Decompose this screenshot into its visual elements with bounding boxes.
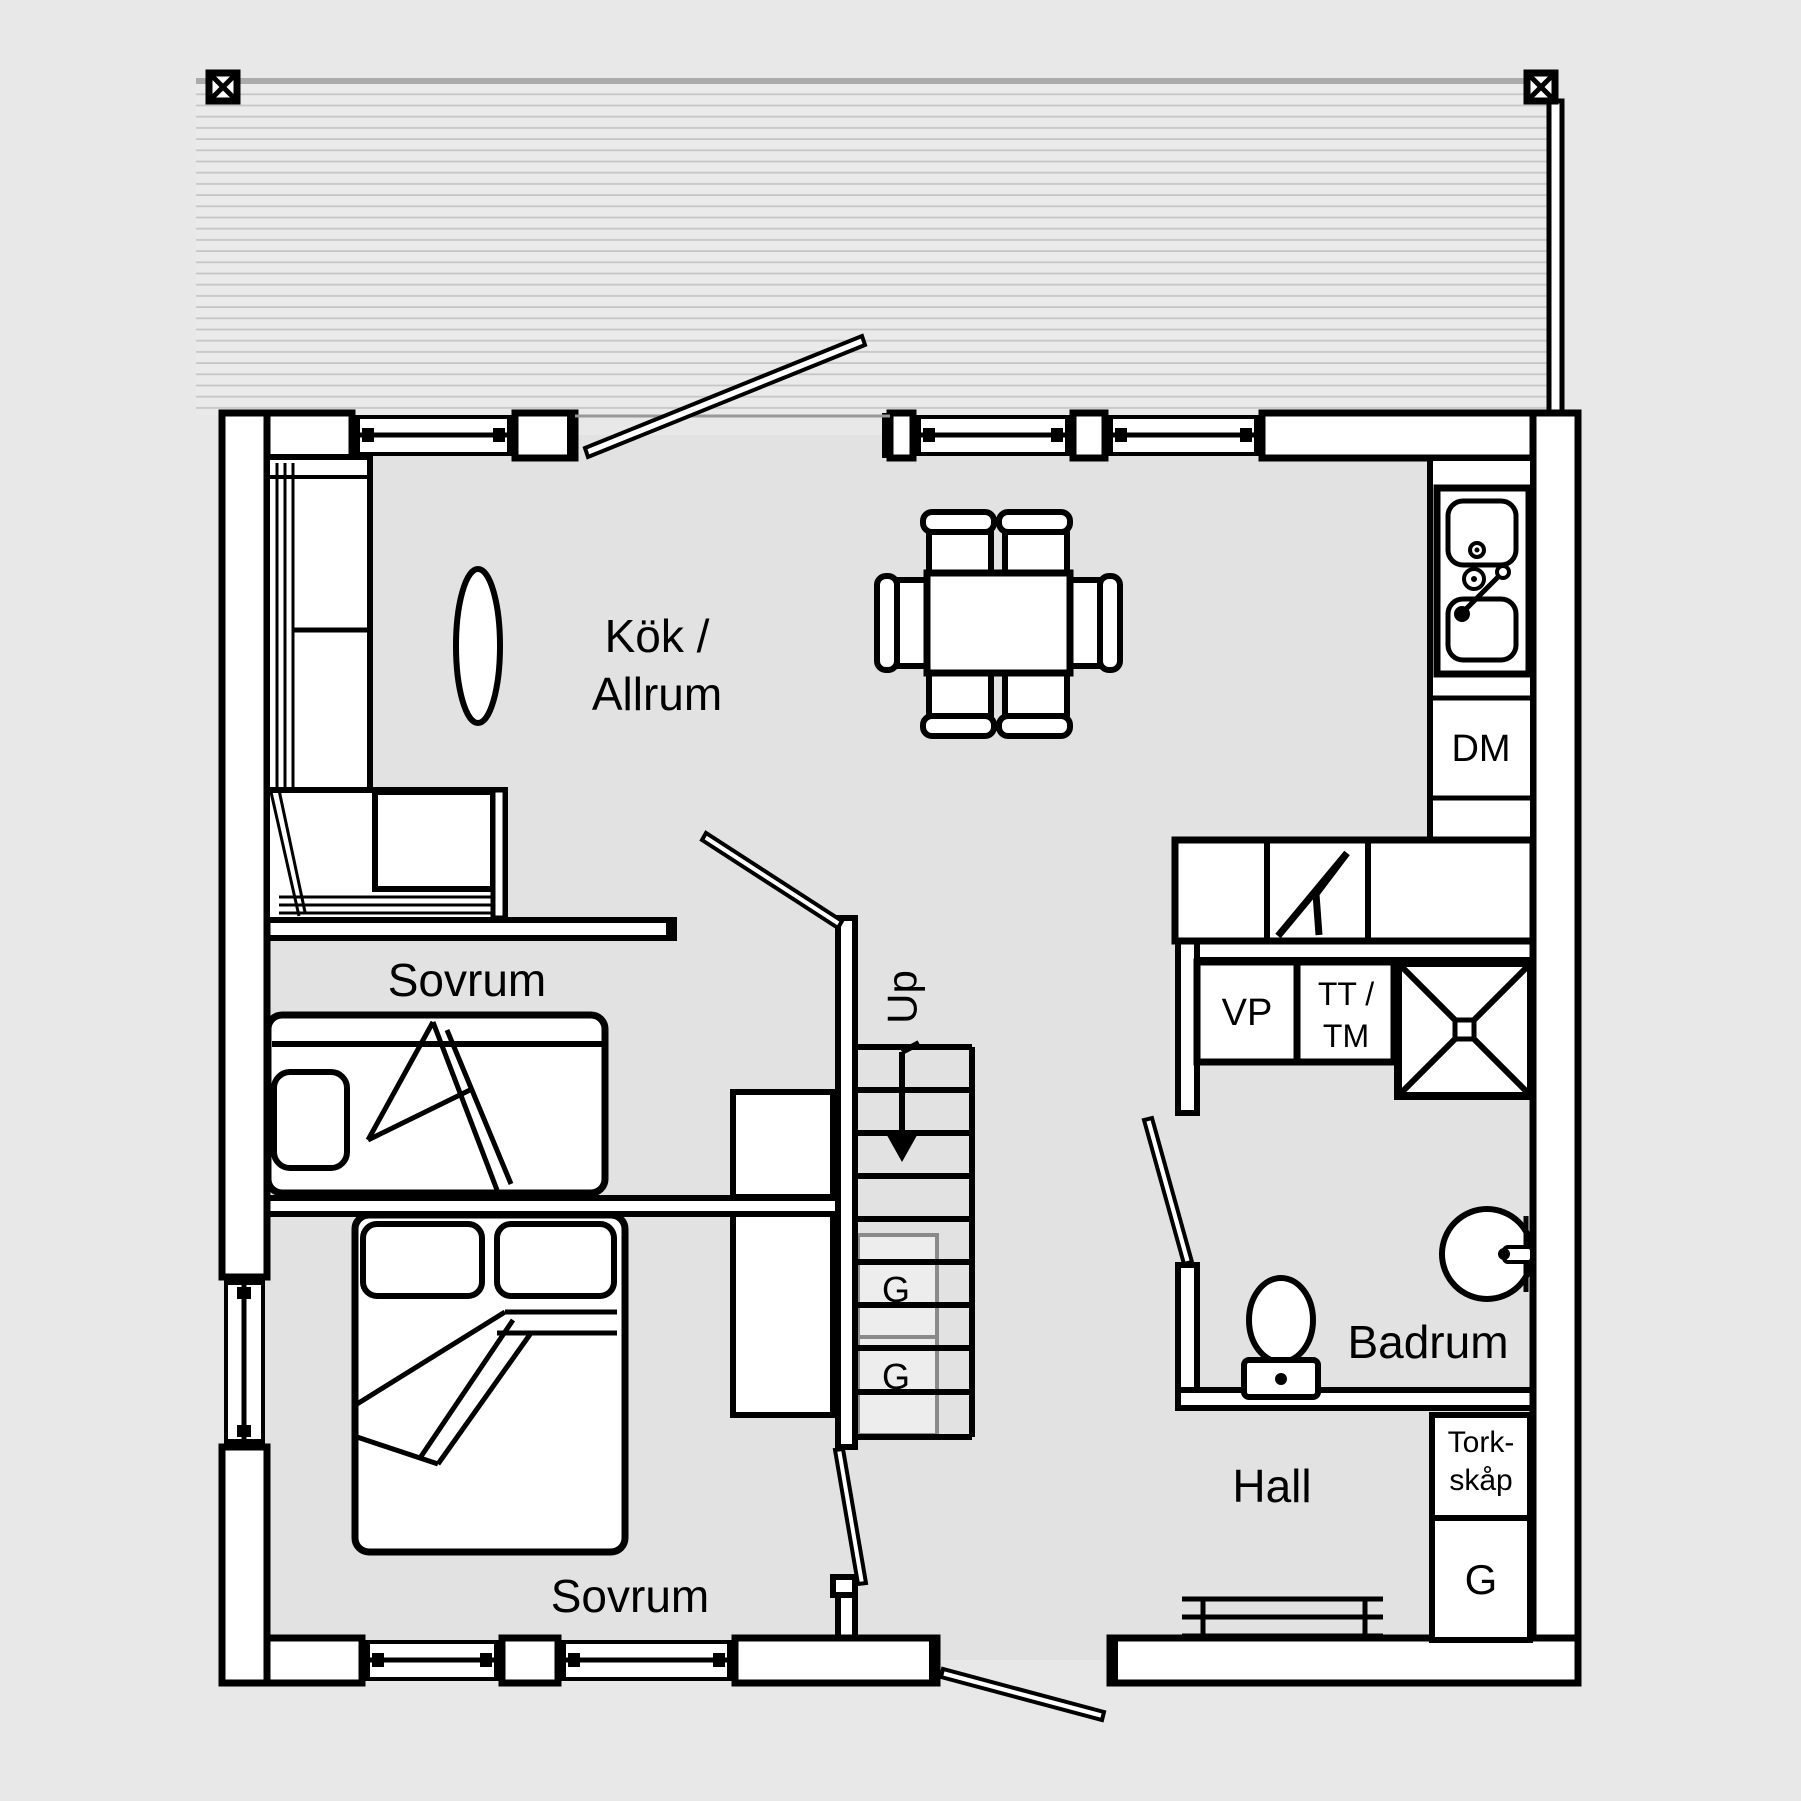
wall-understair-lower xyxy=(838,1595,855,1638)
hall-wardrobe: G xyxy=(1432,1518,1530,1640)
heat-pump-label: VP xyxy=(1222,992,1273,1034)
chair-back xyxy=(877,576,897,670)
chair-seat xyxy=(1070,580,1100,666)
toilet xyxy=(1244,1278,1318,1397)
closet-bedroom1 xyxy=(733,1092,833,1197)
window-bottom-1 xyxy=(362,1640,502,1681)
pillow xyxy=(363,1224,482,1296)
wall-bath-bottom xyxy=(1178,1390,1533,1408)
floor-plan: Up G G xyxy=(0,0,1801,1801)
chair-back xyxy=(999,512,1070,532)
kitchen-living-label-2: Allrum xyxy=(592,668,722,720)
bedroom1-label: Sovrum xyxy=(388,954,546,1006)
pillow xyxy=(274,1072,347,1168)
chair-seat xyxy=(1005,532,1067,573)
drying-cabinet-label-1: Tork- xyxy=(1448,1426,1515,1459)
drying-cabinet: Tork- skåp xyxy=(1432,1415,1530,1518)
washer-dryer-label-1: TT / xyxy=(1318,976,1374,1012)
closet-bedroom2 xyxy=(733,1214,833,1415)
kitchen-cabinet-row xyxy=(1175,840,1533,941)
window-bottom-2 xyxy=(558,1640,735,1681)
washer-dryer-label-2: TM xyxy=(1323,1018,1369,1054)
deck-post-right xyxy=(1527,73,1555,101)
shower xyxy=(1398,963,1531,1096)
wall-stair xyxy=(838,918,855,1447)
deck-post-left xyxy=(209,73,237,101)
hall-wardrobe-label: G xyxy=(1465,1556,1498,1603)
hall-label: Hall xyxy=(1232,1460,1311,1512)
kitchen-living-label-1: Kök / xyxy=(605,610,710,662)
dishwasher-label: DM xyxy=(1451,728,1510,770)
window-top-1 xyxy=(352,415,515,456)
kitchen-sink xyxy=(1437,488,1529,674)
chair-back xyxy=(923,512,994,532)
drying-cabinet-label-2: skåp xyxy=(1449,1464,1512,1497)
window-top-3 xyxy=(1105,415,1262,456)
kitchen-counter: DM xyxy=(1430,458,1533,840)
window-top-2 xyxy=(913,415,1073,456)
chair-seat xyxy=(897,580,927,666)
double-bed xyxy=(355,1215,625,1552)
window-left xyxy=(224,1277,265,1447)
understair-g2-label: G xyxy=(882,1356,910,1397)
understair-g1-label: G xyxy=(882,1269,910,1310)
chair-back xyxy=(923,716,994,736)
deck-rail xyxy=(1549,101,1562,413)
wall-bath-left-b xyxy=(1178,1265,1197,1398)
bedroom2-label: Sovrum xyxy=(551,1570,709,1622)
chair-seat xyxy=(1005,673,1067,716)
chair-seat xyxy=(929,532,991,573)
chair-back xyxy=(999,716,1070,736)
wash-basin xyxy=(1442,1209,1532,1299)
deck-terrace xyxy=(196,73,1562,415)
single-bed xyxy=(268,1015,605,1193)
chair-seat xyxy=(929,673,991,716)
pillow xyxy=(497,1224,614,1296)
bathroom-label: Badrum xyxy=(1347,1316,1508,1368)
chair-back xyxy=(1100,576,1120,670)
dining-table xyxy=(927,573,1070,673)
side-table xyxy=(456,569,500,723)
stairs-up-label: Up xyxy=(879,970,926,1024)
